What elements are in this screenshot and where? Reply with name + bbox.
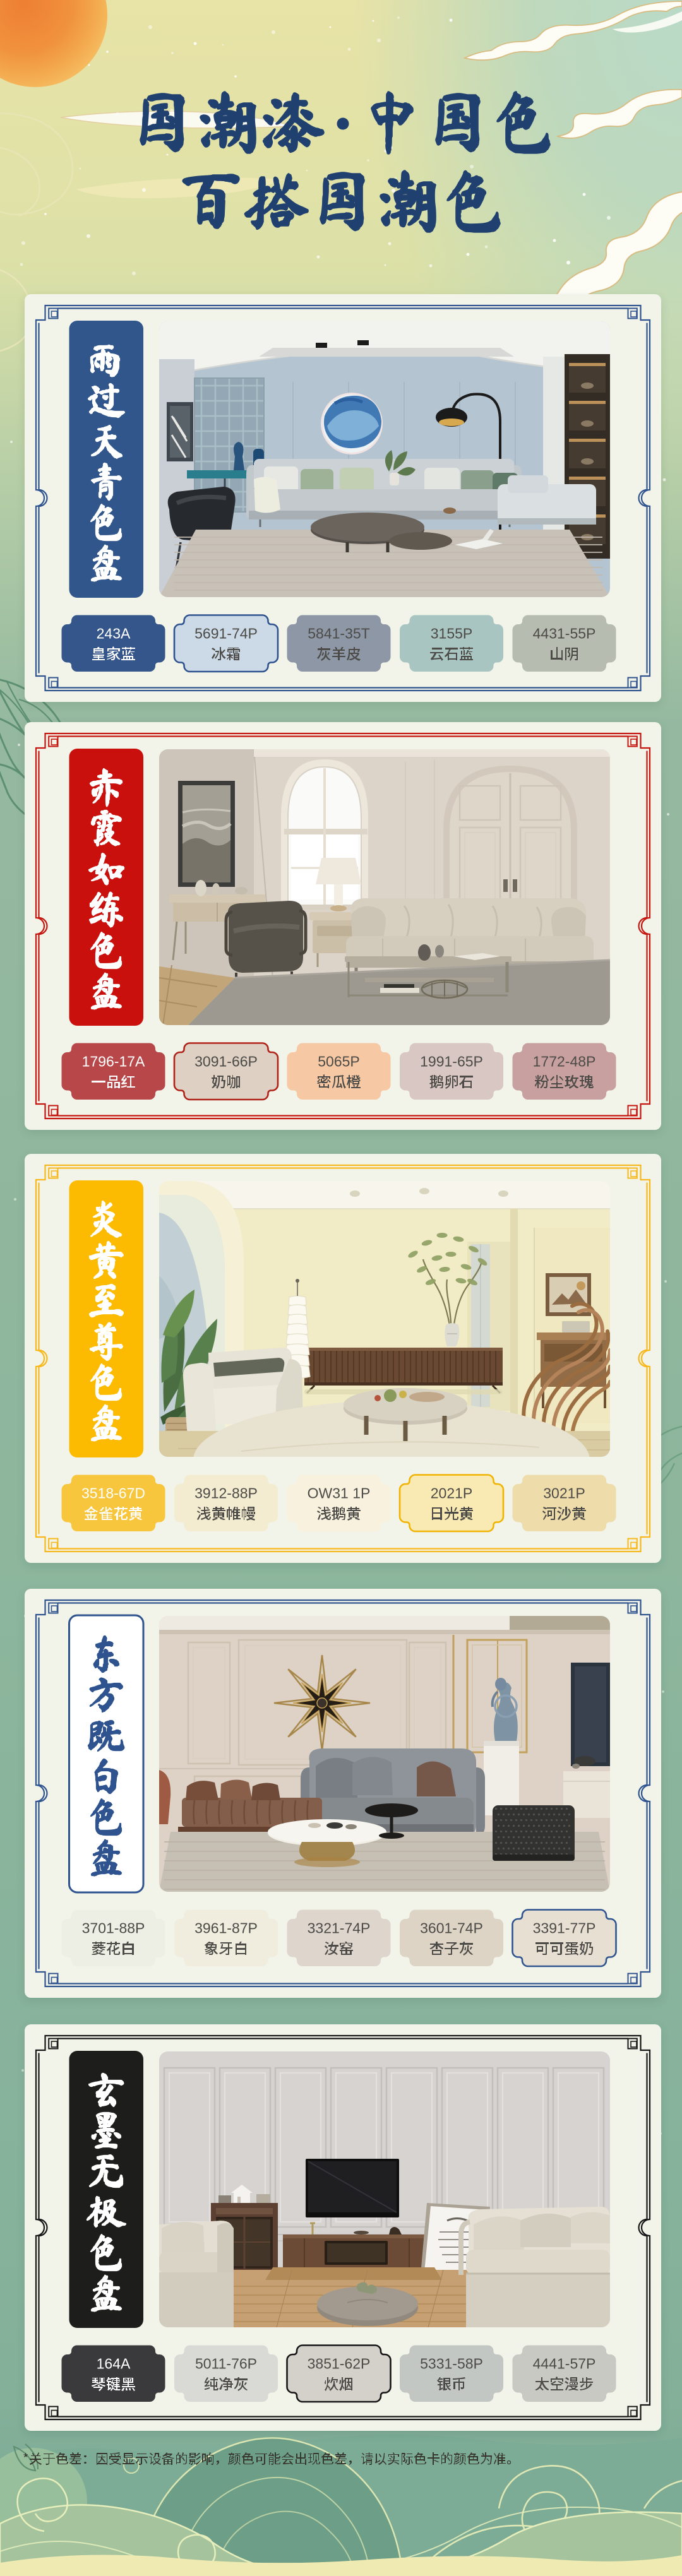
svg-text:1772-48P: 1772-48P bbox=[533, 1054, 596, 1070]
svg-text:3155P: 3155P bbox=[431, 626, 473, 642]
svg-text:4441-57P: 4441-57P bbox=[533, 2356, 596, 2372]
svg-text:5691-74P: 5691-74P bbox=[194, 626, 258, 642]
svg-text:3961-87P: 3961-87P bbox=[194, 1920, 258, 1937]
svg-text:5841-35T: 5841-35T bbox=[308, 626, 369, 642]
svg-text:3518-67D: 3518-67D bbox=[81, 1485, 145, 1502]
svg-text:2021P: 2021P bbox=[431, 1485, 473, 1502]
svg-text:3321-74P: 3321-74P bbox=[308, 1920, 371, 1937]
svg-text:3021P: 3021P bbox=[543, 1485, 585, 1502]
svg-text:3601-74P: 3601-74P bbox=[420, 1920, 483, 1937]
svg-text:5011-76P: 5011-76P bbox=[195, 2356, 257, 2372]
svg-text:OW31 1P: OW31 1P bbox=[308, 1485, 371, 1502]
svg-text:3851-62P: 3851-62P bbox=[308, 2356, 371, 2372]
svg-text:164A: 164A bbox=[97, 2356, 131, 2372]
svg-text:3391-77P: 3391-77P bbox=[533, 1920, 596, 1937]
svg-text:1991-65P: 1991-65P bbox=[420, 1054, 483, 1070]
svg-text:1796-17A: 1796-17A bbox=[82, 1054, 145, 1070]
svg-text:3701-88P: 3701-88P bbox=[82, 1920, 145, 1937]
svg-text:5065P: 5065P bbox=[318, 1054, 360, 1070]
svg-text:3912-88P: 3912-88P bbox=[194, 1485, 258, 1502]
svg-text:5331-58P: 5331-58P bbox=[420, 2356, 483, 2372]
svg-text:3091-66P: 3091-66P bbox=[194, 1054, 258, 1070]
svg-text:243A: 243A bbox=[97, 626, 131, 642]
svg-text:4431-55P: 4431-55P bbox=[533, 626, 596, 642]
